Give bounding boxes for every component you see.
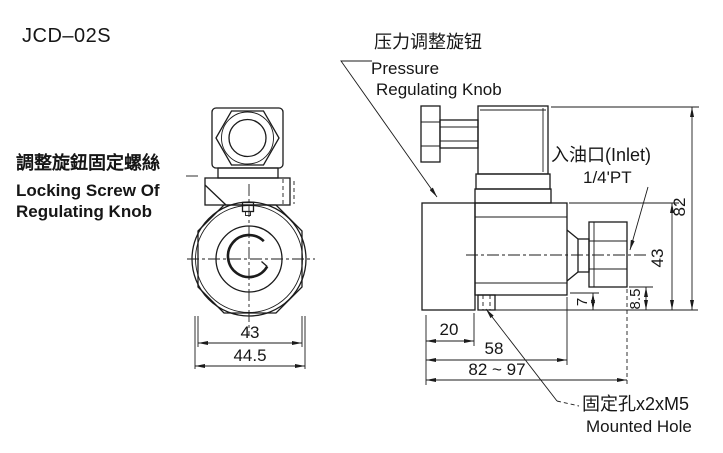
collar-front <box>218 168 278 178</box>
dim-front-across-flats: 43 <box>198 316 302 347</box>
leader-mounted-hole-dash <box>557 401 579 406</box>
knob-cap-front <box>212 108 283 168</box>
dim-text-20: 20 <box>440 320 459 339</box>
collar-step-2 <box>475 189 551 203</box>
valve-drawing: JCD–02S 43 <box>0 0 723 453</box>
knob-grip-arc <box>228 235 267 277</box>
dim-body-height: 43 <box>569 203 679 310</box>
dim-text-8-5: 8.5 <box>627 289 644 310</box>
label-inlet-zh: 入油口(Inlet) <box>551 145 651 165</box>
front-view: 43 44.5 <box>187 108 315 369</box>
label-pressure-zh: 压力调整旋钮 <box>374 32 482 52</box>
label-inlet-size: 1/4'PT <box>583 168 632 187</box>
label-mounted-hole-en: Mounted Hole <box>586 417 692 436</box>
label-locking-screw-en2: Regulating Knob <box>16 202 152 221</box>
cone-upper <box>567 230 578 239</box>
dim-text-58: 58 <box>485 339 504 358</box>
dim-text-82-97: 82 ~ 97 <box>468 360 525 379</box>
leader-inlet <box>630 187 648 250</box>
bracket-chamfer <box>205 185 226 205</box>
dim-text-82: 82 <box>670 198 689 217</box>
knob-cap-side <box>478 106 548 174</box>
bracket-plate <box>205 178 290 205</box>
inlet-neck <box>578 239 589 272</box>
hex-bore-circle <box>229 120 266 157</box>
label-pressure-en1: Pressure <box>371 59 439 78</box>
dim-text-7: 7 <box>574 298 591 306</box>
callout-labels: 調整旋鈕固定螺絲 Locking Screw Of Regulating Kno… <box>16 32 692 436</box>
dim-step-height: 7 <box>570 293 599 310</box>
cone-lower <box>567 272 578 281</box>
knob-grip-arc-hook <box>262 262 268 267</box>
label-locking-screw-zh: 調整旋鈕固定螺絲 <box>16 152 160 173</box>
dim-text-43-side: 43 <box>648 249 667 268</box>
mounting-tab <box>478 295 495 310</box>
knurled-knob <box>422 203 475 310</box>
collar-step-1 <box>476 174 550 189</box>
dim-port-height: 8.5 <box>627 287 653 310</box>
label-locking-screw-en1: Locking Screw Of <box>16 181 160 200</box>
inlet-hex-fitting <box>589 222 627 287</box>
label-mounted-hole-zh: 固定孔x2xM5 <box>582 394 689 414</box>
page-title: JCD–02S <box>22 25 111 47</box>
dim-overall-height: 82 <box>551 107 699 310</box>
dim-text-44-5: 44.5 <box>233 346 266 365</box>
dim-text-43-front: 43 <box>241 323 260 342</box>
label-pressure-en2: Regulating Knob <box>376 80 502 99</box>
dim-knob-length: 20 <box>426 313 474 385</box>
locking-screw-side <box>421 106 478 162</box>
technical-drawing-page: JCD–02S 43 <box>0 0 723 453</box>
